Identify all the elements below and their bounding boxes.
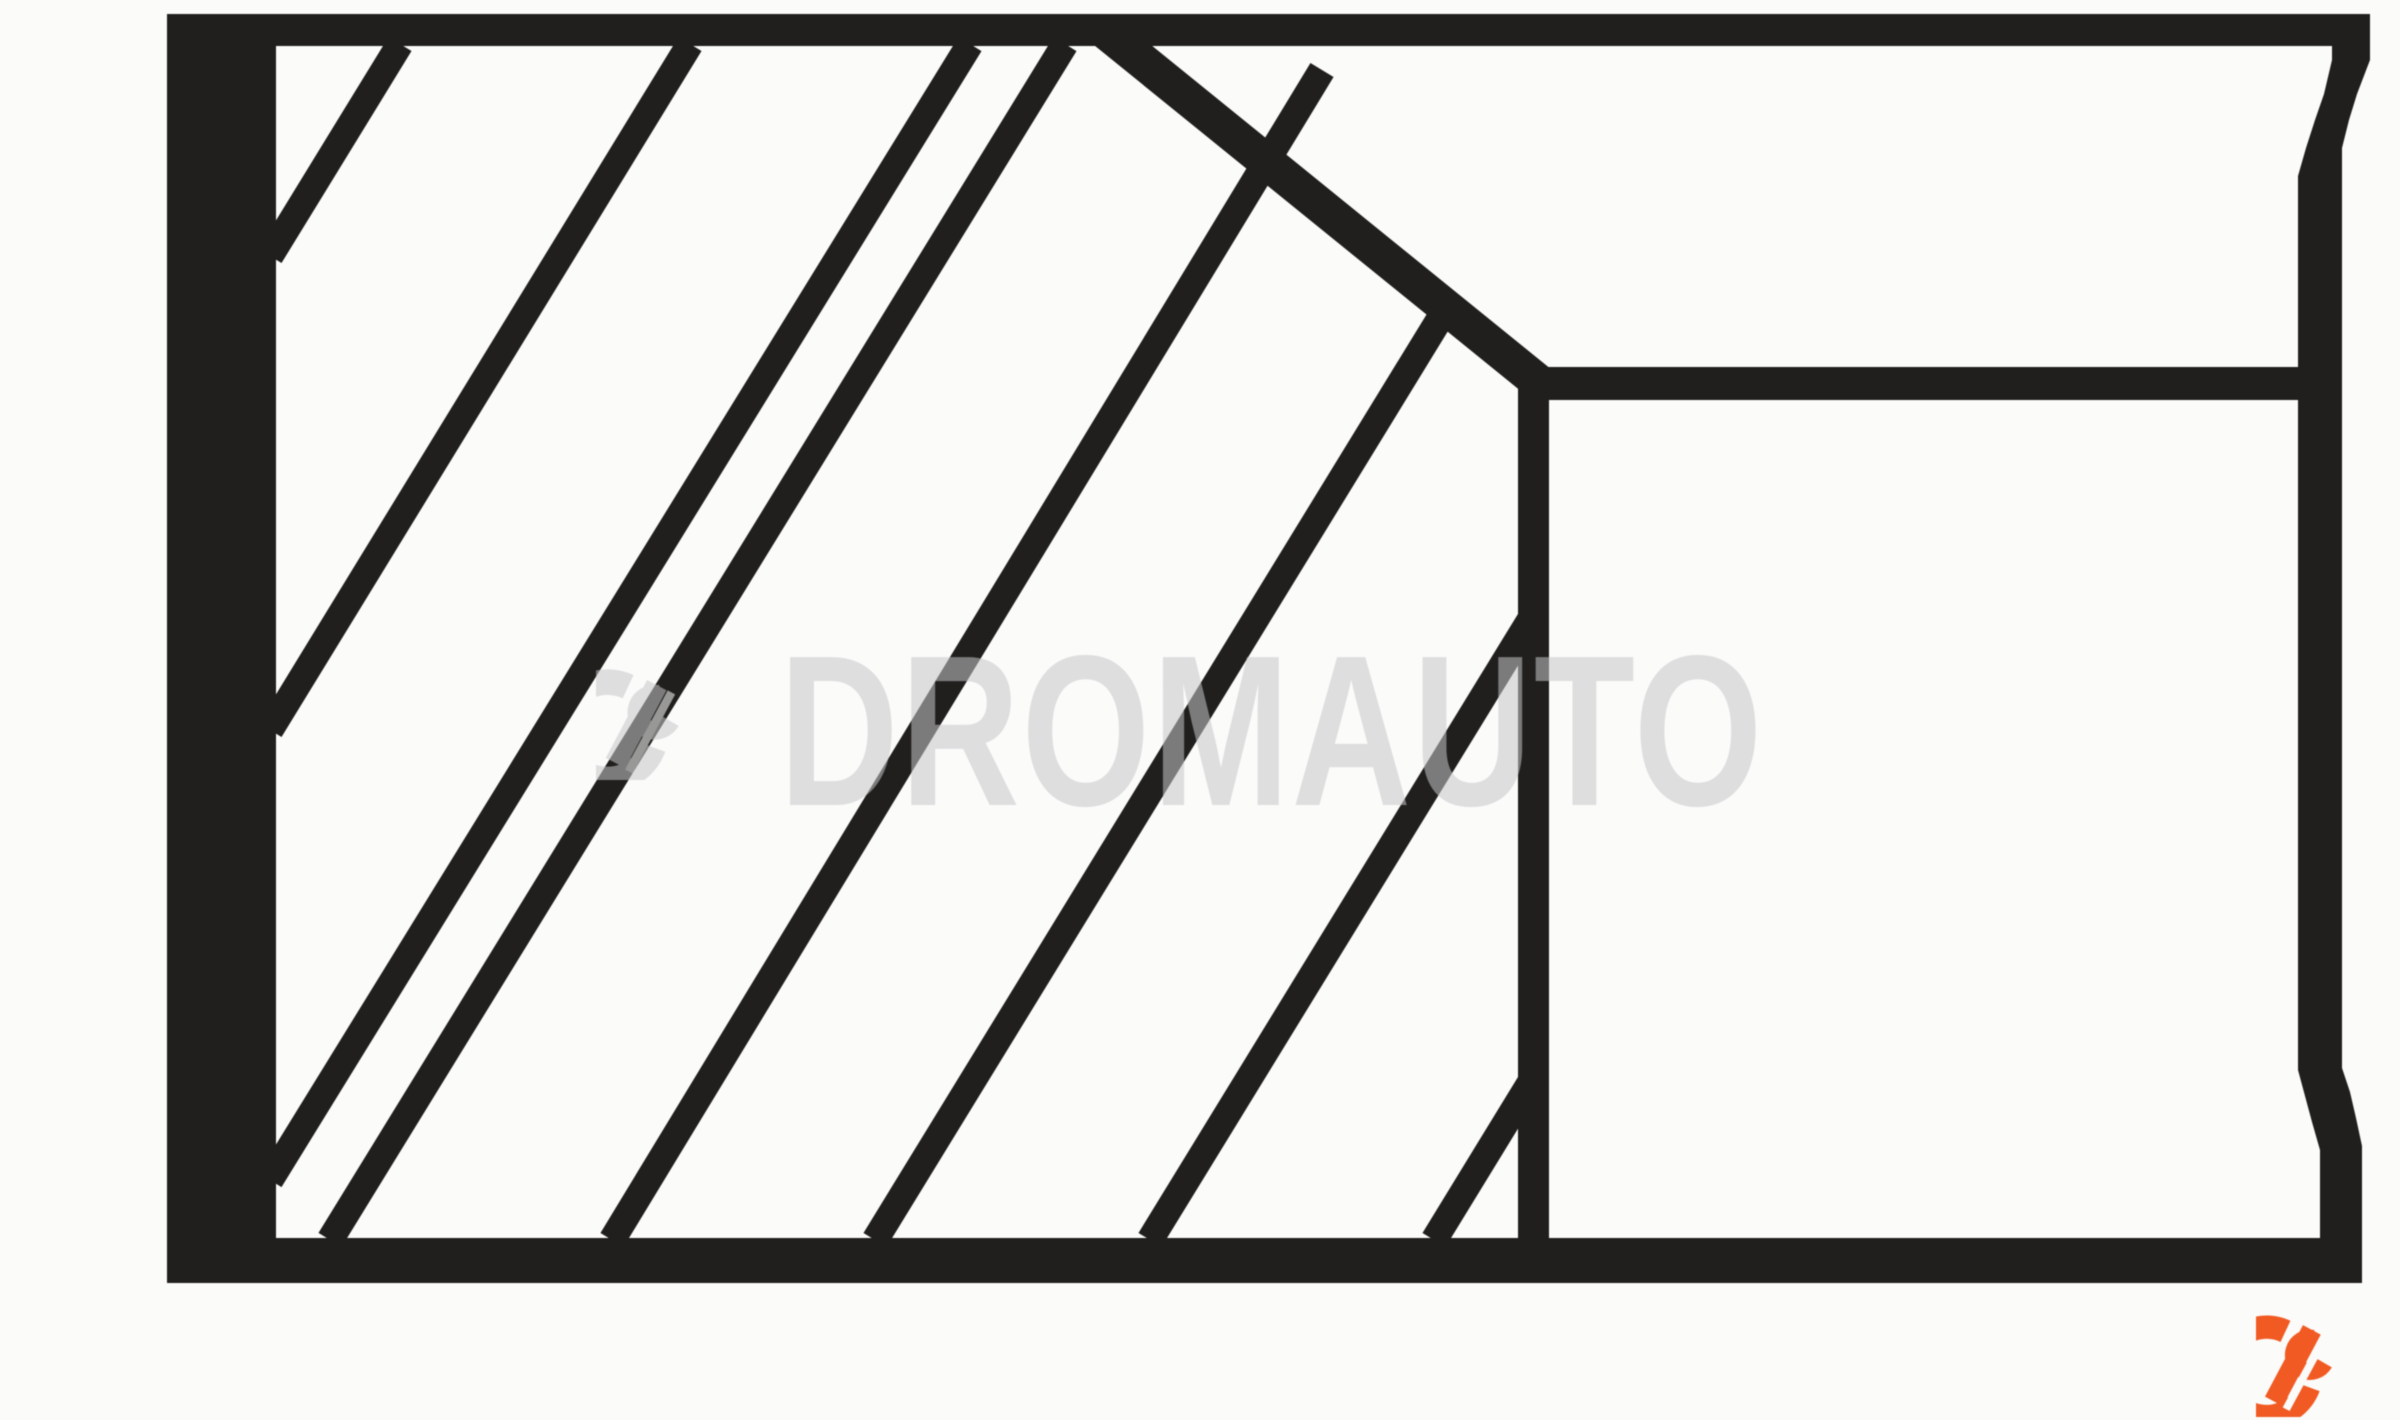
catalog-product-image: DROMAUTO <box>0 0 2400 1420</box>
left-flange-bar <box>167 14 276 1283</box>
step-horizontal-line <box>1518 367 2310 400</box>
technical-drawing-canvas: DROMAUTO <box>0 0 2400 1420</box>
top-edge-bar <box>167 14 2370 46</box>
bottom-edge-bar <box>167 1238 2362 1283</box>
watermark-text: DROMAUTO <box>779 610 1764 851</box>
